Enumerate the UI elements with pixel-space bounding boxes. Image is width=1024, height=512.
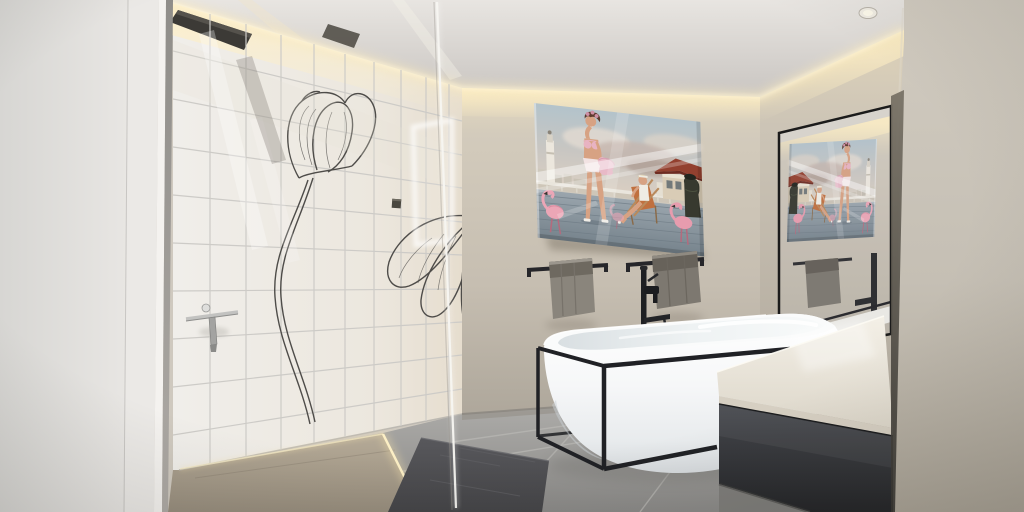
bathroom-photo (0, 0, 1024, 512)
vignette (0, 0, 1024, 512)
